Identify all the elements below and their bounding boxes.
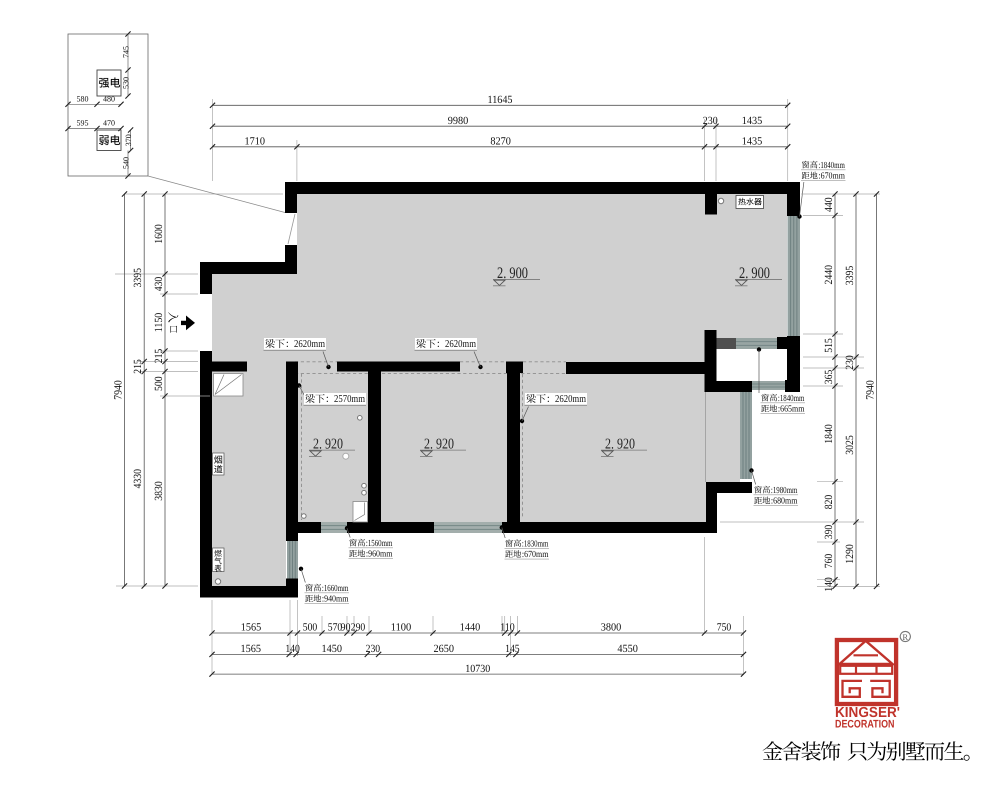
svg-text::680mm: :680mm	[771, 497, 798, 507]
svg-text:580: 580	[77, 95, 89, 104]
svg-text:230: 230	[844, 355, 856, 370]
svg-text::670mm: :670mm	[818, 172, 845, 182]
svg-text:R: R	[902, 632, 908, 642]
svg-text:370: 370	[124, 134, 133, 146]
svg-text:2620mm: 2620mm	[555, 394, 586, 405]
svg-text:10730: 10730	[465, 663, 490, 675]
svg-text:9980: 9980	[448, 115, 469, 127]
svg-text:530: 530	[121, 77, 130, 89]
svg-text::1840mm: :1840mm	[778, 394, 805, 404]
svg-text:215: 215	[132, 359, 144, 374]
svg-text:365: 365	[823, 369, 835, 384]
svg-text:90: 90	[341, 622, 351, 634]
svg-text:8270: 8270	[490, 136, 511, 148]
svg-text:1565: 1565	[241, 622, 262, 634]
svg-text::1830mm: :1830mm	[522, 539, 549, 549]
svg-text::670mm: :670mm	[522, 550, 549, 560]
svg-text:480: 480	[103, 95, 115, 104]
svg-text:2570mm: 2570mm	[334, 394, 365, 405]
svg-text::960mm: :960mm	[366, 550, 393, 560]
svg-text:1450: 1450	[321, 643, 342, 655]
svg-text:215: 215	[153, 348, 165, 363]
svg-text:145: 145	[505, 643, 520, 655]
svg-text:515: 515	[823, 338, 835, 353]
svg-text:230: 230	[366, 643, 381, 655]
svg-text:595: 595	[77, 119, 89, 128]
svg-text:140: 140	[285, 643, 300, 655]
svg-text:3830: 3830	[153, 481, 165, 501]
svg-text:110: 110	[500, 622, 515, 634]
svg-text:1710: 1710	[244, 136, 265, 148]
svg-text:500: 500	[153, 376, 165, 391]
svg-text:500: 500	[303, 622, 318, 634]
svg-text:1100: 1100	[391, 622, 412, 634]
svg-text:1435: 1435	[742, 115, 763, 127]
svg-text:470: 470	[103, 119, 115, 128]
svg-text:11645: 11645	[488, 94, 513, 106]
svg-text:1565: 1565	[240, 643, 261, 655]
svg-text::1840mm: :1840mm	[818, 161, 845, 171]
svg-text:7940: 7940	[864, 380, 876, 400]
svg-text::665mm: :665mm	[778, 405, 805, 415]
svg-text::1660mm: :1660mm	[322, 584, 349, 594]
svg-text:3395: 3395	[844, 265, 856, 285]
svg-text:390: 390	[823, 524, 835, 539]
svg-text::940mm: :940mm	[322, 595, 349, 605]
svg-text::1980mm: :1980mm	[771, 486, 798, 496]
svg-text:1440: 1440	[460, 622, 481, 634]
svg-text:760: 760	[823, 553, 835, 568]
svg-text:430: 430	[153, 276, 165, 291]
svg-text:440: 440	[823, 197, 835, 212]
svg-text:820: 820	[823, 494, 835, 509]
svg-text:2650: 2650	[434, 643, 455, 655]
svg-text:1600: 1600	[153, 224, 165, 244]
svg-text:540: 540	[121, 157, 130, 169]
svg-text:1290: 1290	[844, 544, 856, 564]
svg-text:3025: 3025	[844, 435, 856, 455]
svg-text:1435: 1435	[742, 136, 763, 148]
svg-text:750: 750	[717, 622, 732, 634]
svg-text:7940: 7940	[112, 380, 124, 400]
svg-text:3800: 3800	[601, 622, 622, 634]
svg-text:2620mm: 2620mm	[445, 339, 476, 350]
svg-text:290: 290	[351, 622, 366, 634]
svg-text:1840: 1840	[823, 424, 835, 444]
svg-text:4330: 4330	[132, 469, 144, 489]
svg-text:230: 230	[703, 115, 718, 127]
svg-text:140: 140	[823, 577, 835, 592]
svg-text:DECORATION: DECORATION	[835, 718, 895, 730]
svg-text:4550: 4550	[617, 643, 638, 655]
svg-text:2620mm: 2620mm	[294, 339, 325, 350]
svg-text:745: 745	[121, 46, 130, 58]
svg-text:1150: 1150	[153, 312, 165, 332]
svg-text:2440: 2440	[823, 265, 835, 285]
svg-text:3395: 3395	[132, 268, 144, 288]
svg-text::1560mm: :1560mm	[366, 539, 393, 549]
